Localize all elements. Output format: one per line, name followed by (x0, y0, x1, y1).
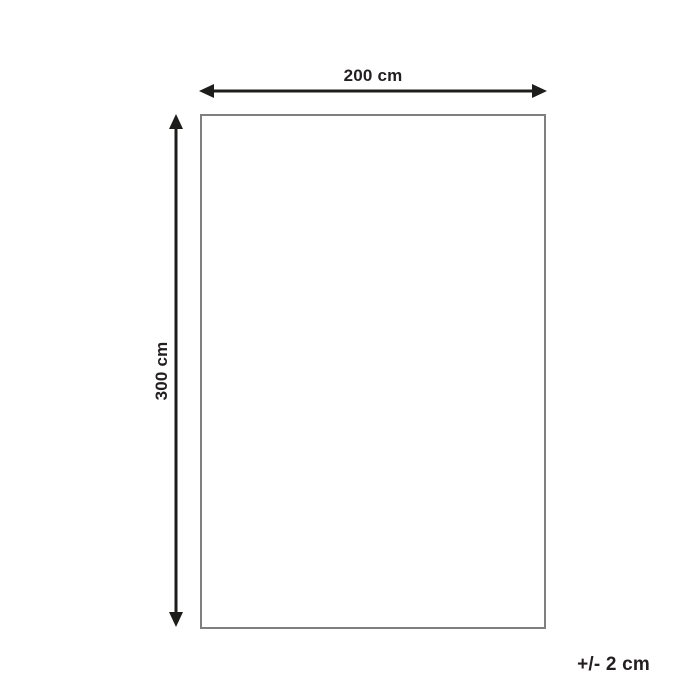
width-arrow (199, 84, 547, 98)
width-arrow-left-head-icon (199, 84, 214, 98)
diagram-graphics (0, 0, 700, 700)
height-dimension-label: 300 cm (152, 342, 172, 401)
dimension-diagram: 200 cm 300 cm +/- 2 cm (0, 0, 700, 700)
height-arrow-top-head-icon (169, 114, 183, 129)
product-outline-rect (201, 115, 545, 628)
tolerance-label: +/- 2 cm (577, 654, 650, 676)
width-dimension-label: 200 cm (344, 66, 403, 86)
height-arrow-bottom-head-icon (169, 612, 183, 627)
width-arrow-right-head-icon (532, 84, 547, 98)
